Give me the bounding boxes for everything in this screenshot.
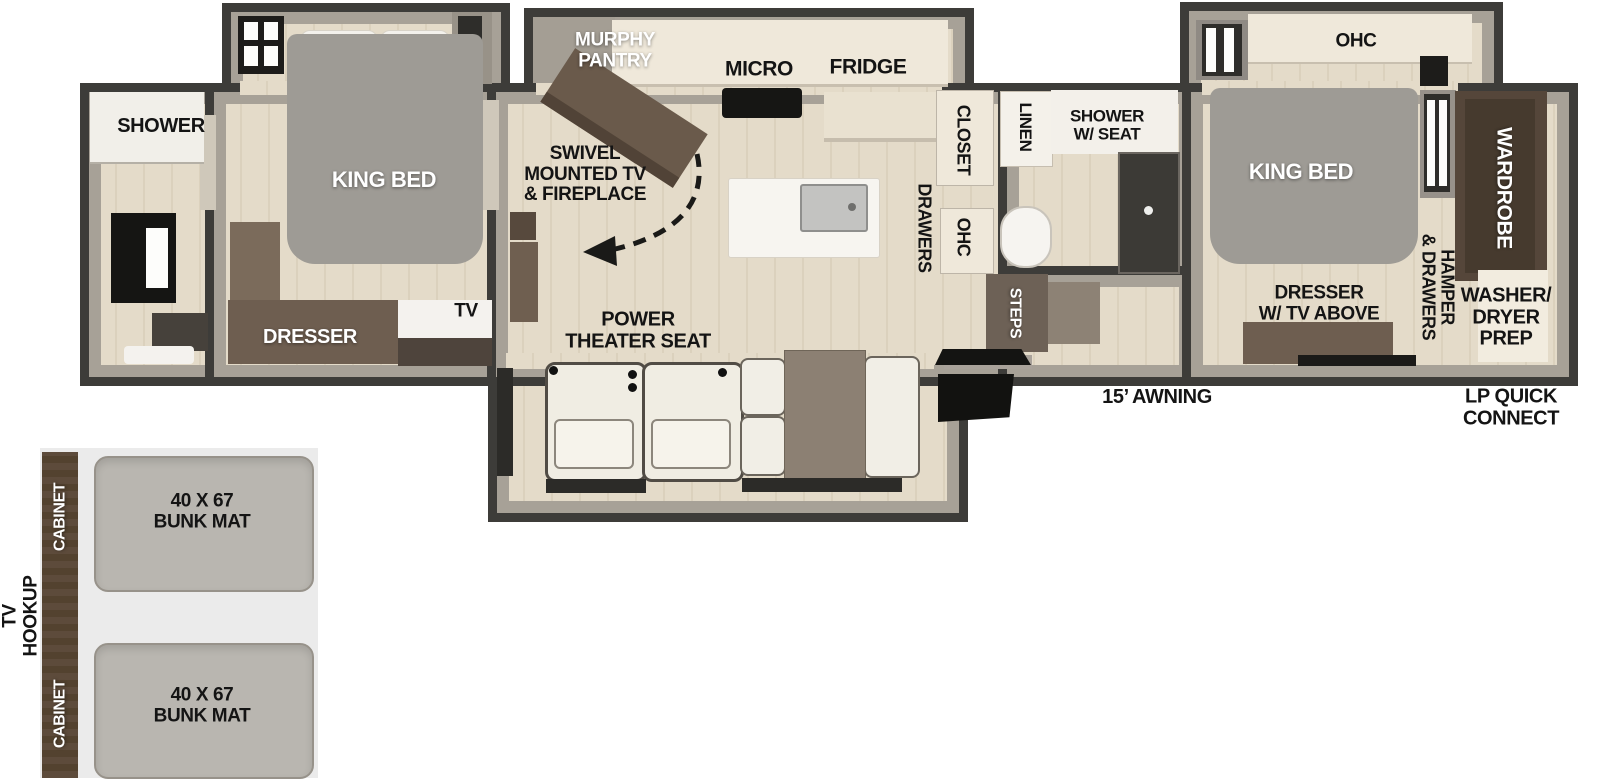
cup-holder (549, 366, 558, 375)
line: 40 X 67 (154, 685, 251, 706)
rear-slide-window (238, 16, 284, 74)
line: MOUNTED TV (524, 165, 646, 186)
line: WASHER/ (1461, 286, 1552, 308)
rear-bath-window-slit (146, 228, 168, 288)
line: HAMPER (1437, 234, 1456, 340)
window-pane (1202, 24, 1242, 76)
shower-w-seat-label: SHOWER W/ SEAT (1070, 108, 1144, 145)
line: SHOWER (1070, 108, 1144, 126)
rear-tv-label: TV (454, 302, 477, 323)
dinette-table (784, 350, 866, 480)
rear-bath-toilet (124, 346, 194, 364)
line: & DRAWERS (1418, 234, 1437, 340)
micro-label: MICRO (725, 59, 793, 82)
dinette-bench (740, 358, 786, 416)
line: POWER (565, 309, 711, 331)
pane (264, 46, 278, 66)
dinette-bench (864, 356, 920, 478)
mid-bath-toilet (1000, 206, 1052, 268)
rear-king-bed-label: KING BED (332, 168, 436, 192)
line: LP QUICK (1463, 386, 1559, 408)
power-theater-label: POWER THEATER SEAT (565, 309, 711, 352)
line: BUNK MAT (154, 706, 251, 727)
lp-quick-connect-label: LP QUICK CONNECT (1463, 386, 1559, 429)
washer-dryer-label: WASHER/ DRYER PREP (1461, 286, 1552, 351)
tv-hookup-label: TV HOOKUP (0, 576, 41, 657)
pane (1427, 100, 1435, 186)
seat-cushion (651, 419, 731, 469)
fireplace-cabinet (510, 242, 538, 322)
line: W/ TV ABOVE (1259, 304, 1380, 325)
entry-step (938, 374, 1014, 422)
slide-window-bottom (546, 479, 646, 493)
line: PANTRY (575, 51, 655, 72)
island-sink (800, 184, 868, 232)
rv-floorplan: SHOWER KING BED DRESSER TV MURPHY PANTRY… (0, 0, 1600, 779)
theater-seat (545, 362, 647, 482)
entry-threshold (935, 349, 1031, 365)
line: SWIVEL (524, 144, 646, 165)
pane (244, 22, 258, 40)
line: TV (0, 576, 21, 657)
cup-holder (628, 383, 637, 392)
wall-cabinet (510, 212, 536, 240)
front-dresser-label: DRESSER W/ TV ABOVE (1259, 283, 1380, 324)
fridge-label: FRIDGE (830, 57, 907, 80)
front-slide-window (1196, 20, 1248, 80)
drawers-label: DRAWERS (914, 183, 933, 272)
rear-king-bed (287, 34, 483, 264)
cabinet-top-label: CABINET (51, 483, 68, 551)
bunk-mat-top-label: 40 X 67 BUNK MAT (154, 491, 251, 532)
cup-holder (628, 370, 637, 379)
rear-tv-cabinet (398, 338, 492, 366)
seat-cushion (554, 419, 634, 469)
awning-label: 15’ AWNING (1102, 387, 1212, 409)
pane (264, 22, 278, 40)
rear-tv-shelf (398, 300, 492, 338)
shower-unit (1118, 152, 1180, 274)
shower-label: SHOWER (117, 116, 205, 138)
wardrobe-label: WARDROBE (1492, 127, 1515, 249)
rear-nightstand (230, 222, 280, 302)
fridge-cabinet (824, 92, 936, 142)
rear-dresser-label: DRESSER (263, 327, 357, 349)
linen-label: LINEN (1016, 102, 1034, 151)
cup-holder (718, 368, 727, 377)
steps-label: STEPS (1006, 288, 1023, 338)
ohc-mid-label: OHC (953, 218, 972, 257)
front-window (1420, 90, 1456, 198)
murphy-pantry-label: MURPHY PANTRY (575, 30, 655, 71)
closet-label: CLOSET (953, 105, 972, 176)
slide-window-left (497, 368, 513, 476)
steps-landing (1048, 282, 1100, 344)
front-slide-cabinet (1420, 56, 1448, 86)
pane (244, 46, 258, 66)
line: & FIREPLACE (524, 185, 646, 206)
bunk-mat-bottom-label: 40 X 67 BUNK MAT (154, 685, 251, 726)
line: PREP (1461, 329, 1552, 351)
bedroom-doorway (483, 100, 499, 210)
pane (1206, 28, 1216, 72)
line: BUNK MAT (154, 512, 251, 533)
front-tv-strip (1298, 355, 1416, 366)
line: W/ SEAT (1070, 126, 1144, 144)
line: DRESSER (1259, 283, 1380, 304)
pane (1439, 100, 1447, 186)
rear-bath-window (111, 213, 176, 303)
front-ohc-label: OHC (1335, 32, 1376, 53)
window-pane (1424, 94, 1450, 192)
line: DRYER (1461, 307, 1552, 329)
line: CONNECT (1463, 408, 1559, 430)
faucet (848, 203, 856, 211)
theater-seat (642, 362, 744, 482)
swivel-tv-label: SWIVEL MOUNTED TV & FIREPLACE (524, 144, 646, 206)
line: THEATER SEAT (565, 331, 711, 353)
line: 40 X 67 (154, 491, 251, 512)
shower-knob (1144, 206, 1153, 215)
hamper-drawers-label: HAMPER & DRAWERS (1418, 234, 1457, 340)
front-king-bed-label: KING BED (1249, 160, 1353, 184)
dinette-bench (740, 416, 786, 476)
cooktop (722, 88, 802, 118)
line: HOOKUP (21, 576, 42, 657)
cabinet-bottom-label: CABINET (51, 680, 68, 748)
pane (1224, 28, 1234, 72)
slide-window-bottom (742, 478, 902, 492)
line: MURPHY (575, 30, 655, 51)
